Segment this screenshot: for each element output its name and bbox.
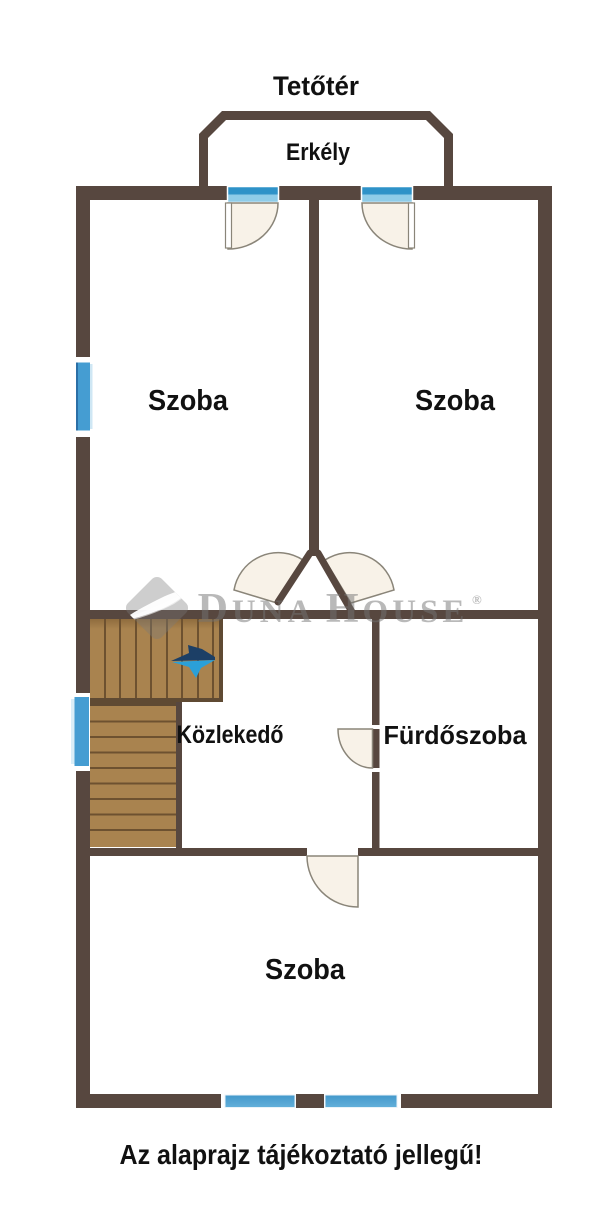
svg-text:Az alaprajz tájékoztató jelleg: Az alaprajz tájékoztató jellegű! (120, 1139, 483, 1170)
svg-text:Szoba: Szoba (148, 385, 229, 417)
svg-text:®: ® (472, 592, 482, 607)
svg-text:Tetőtér: Tetőtér (273, 71, 359, 101)
svg-text:Fürdőszoba: Fürdőszoba (384, 720, 528, 750)
svg-text:Közlekedő: Közlekedő (177, 721, 284, 749)
svg-text:Szoba: Szoba (415, 385, 496, 417)
svg-text:Erkély: Erkély (286, 139, 351, 166)
svg-text:Szoba: Szoba (265, 954, 346, 986)
